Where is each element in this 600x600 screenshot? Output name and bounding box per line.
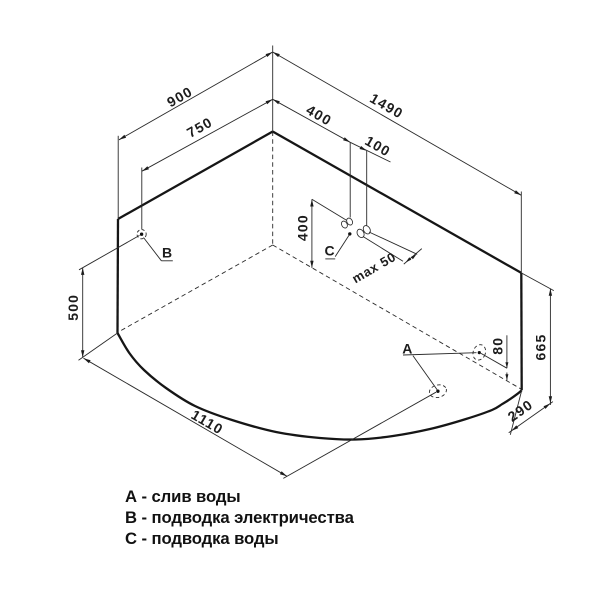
svg-text:В - подводка электричества: В - подводка электричества	[125, 508, 355, 527]
svg-text:С - подводка воды: С - подводка воды	[125, 529, 279, 548]
svg-text:C: C	[324, 242, 334, 258]
svg-text:A: A	[402, 340, 412, 356]
svg-text:665: 665	[533, 334, 549, 361]
svg-text:400: 400	[294, 214, 310, 241]
svg-text:А - слив воды: А - слив воды	[125, 487, 240, 506]
svg-text:80: 80	[490, 337, 506, 355]
svg-text:500: 500	[65, 294, 81, 321]
svg-text:B: B	[162, 245, 172, 261]
